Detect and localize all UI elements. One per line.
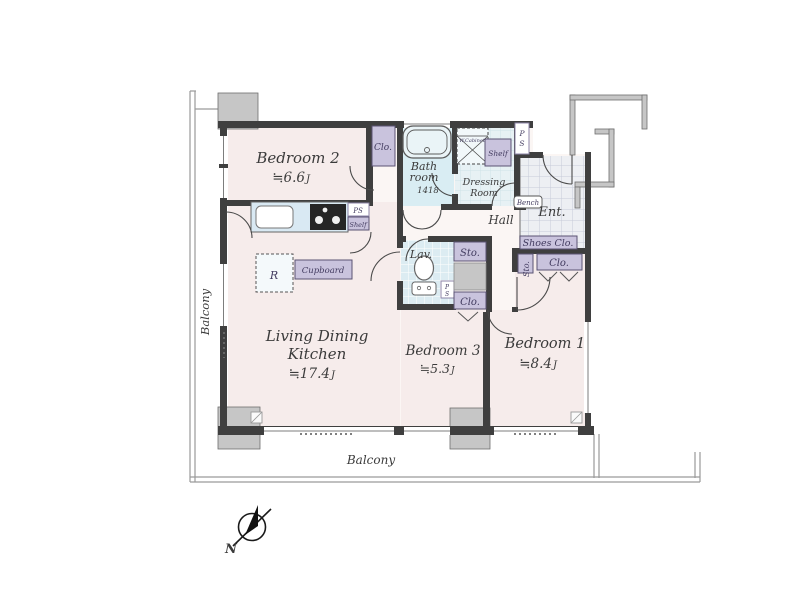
closet-label: Clo. (374, 143, 392, 153)
cupboard-label: Cupboard (302, 266, 345, 276)
lavatory-label: Lav. (409, 248, 432, 261)
storage-label: Sto. (522, 261, 531, 277)
shelf-label: Shelf (488, 149, 509, 158)
bedroom2-label: Bedroom 2 (255, 149, 339, 167)
outside-mask (533, 121, 590, 154)
toilet-tank (412, 282, 436, 295)
window-bedroom1-balcony (494, 427, 578, 435)
floor-plan-image: Bedroom 2 ≒6.6 J Living Dining Kitchen ≒… (0, 0, 800, 600)
window-bedroom3-balcony (404, 427, 450, 435)
pipe-space-label: PS (352, 207, 363, 215)
bedroom3-size: ≒5.3 (420, 361, 450, 376)
bedroom1-size: ≒8.4 (519, 356, 552, 372)
bedroom1-size-unit: J (551, 360, 558, 371)
pipe-space-label: S (519, 139, 524, 148)
entrance-label: Ent. (537, 205, 565, 220)
bathtub-icon (403, 126, 451, 158)
window-ldk-balcony (264, 427, 394, 435)
ldk-label-line2: Kitchen (287, 345, 347, 363)
closet-label: Clo. (549, 258, 569, 269)
dressing-label-line2: Room (469, 188, 498, 199)
bedroom2-size: ≒6.6 (272, 170, 305, 186)
balcony-left-label: Balcony (198, 288, 212, 336)
storage-label: Sto. (460, 248, 480, 259)
dressing-label-line1: Dressing (462, 177, 506, 188)
wall-cabinet-label: W.Cabinet (459, 138, 486, 144)
hall-label: Hall (487, 213, 513, 227)
compass-icon: N (224, 505, 271, 557)
pipe-space-label: P (518, 129, 525, 138)
bath-label-line2: room (410, 171, 439, 184)
pipe-space-label: S (445, 291, 449, 298)
washing-machine-area (457, 128, 488, 164)
window-ldk-left (219, 264, 228, 326)
ldk-size: ≒17.4 (289, 366, 330, 382)
bedroom3-label: Bedroom 3 (405, 343, 481, 359)
ldk-size-unit: J (329, 370, 336, 381)
bench-label: Bench (516, 199, 539, 207)
shelf-label: Shelf (350, 221, 369, 229)
bath-dimension: 1418 (417, 186, 439, 196)
floor-plan-canvas: Bedroom 2 ≒6.6 J Living Dining Kitchen ≒… (0, 0, 800, 600)
compass-north-label: N (224, 542, 238, 557)
window-bedroom2-left (219, 136, 228, 198)
room-ldk (228, 202, 400, 428)
sink-icon (256, 206, 293, 228)
shoes-closet-label: Shoes Clo. (523, 238, 574, 249)
bedroom2-size-unit: J (304, 174, 311, 185)
refrigerator-label: R (269, 269, 278, 282)
ldk-label-line1: Living Dining (265, 327, 369, 345)
closet-label: Clo. (460, 297, 480, 308)
bedroom1-label: Bedroom 1 (504, 336, 586, 352)
balcony-bottom-label: Balcony (346, 453, 395, 467)
duct-space (454, 263, 486, 290)
stove-icon (310, 204, 346, 230)
